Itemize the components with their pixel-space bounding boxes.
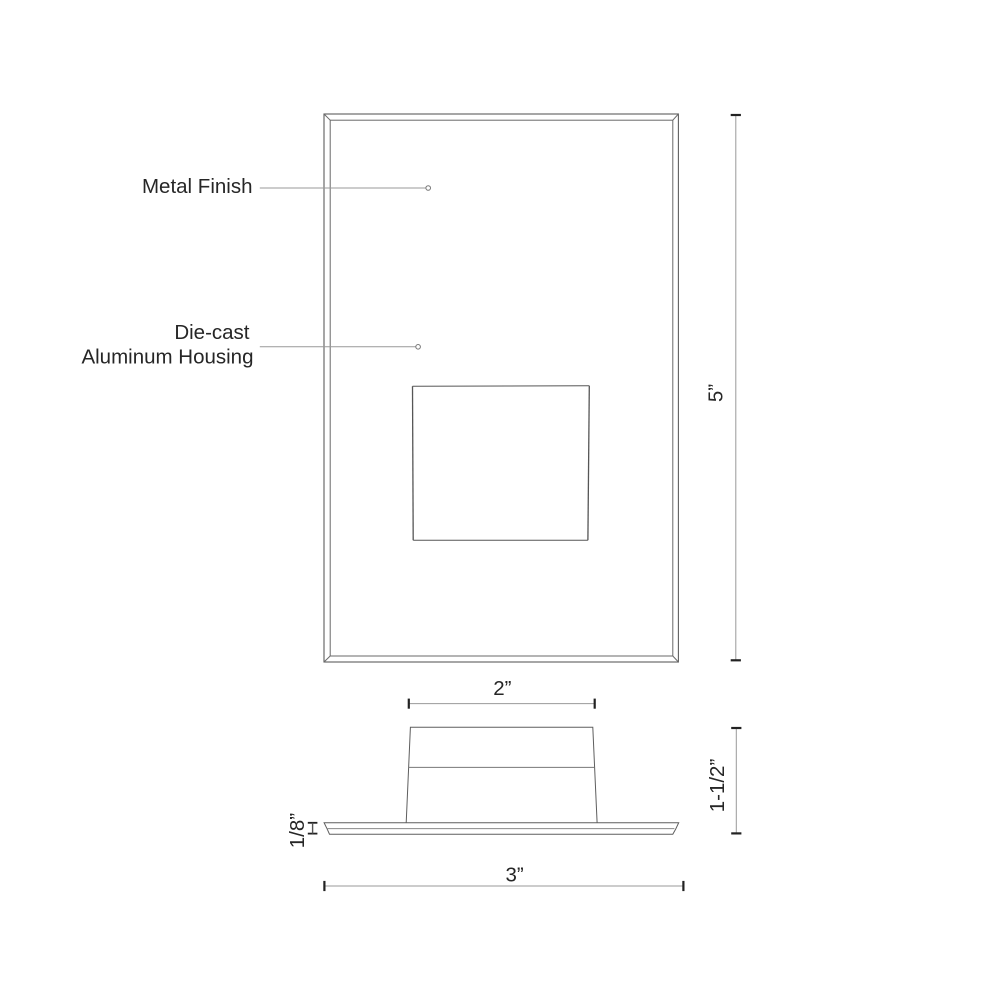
svg-text:2”: 2” xyxy=(493,677,511,700)
svg-text:Metal Finish: Metal Finish xyxy=(142,175,253,198)
svg-text:3”: 3” xyxy=(505,864,523,887)
svg-text:1-1/2”: 1-1/2” xyxy=(706,759,729,813)
svg-text:5”: 5” xyxy=(704,384,727,402)
svg-text:Aluminum Housing: Aluminum Housing xyxy=(81,346,253,369)
svg-text:1/8”: 1/8” xyxy=(286,813,309,848)
svg-text:Die-cast: Die-cast xyxy=(174,321,249,344)
